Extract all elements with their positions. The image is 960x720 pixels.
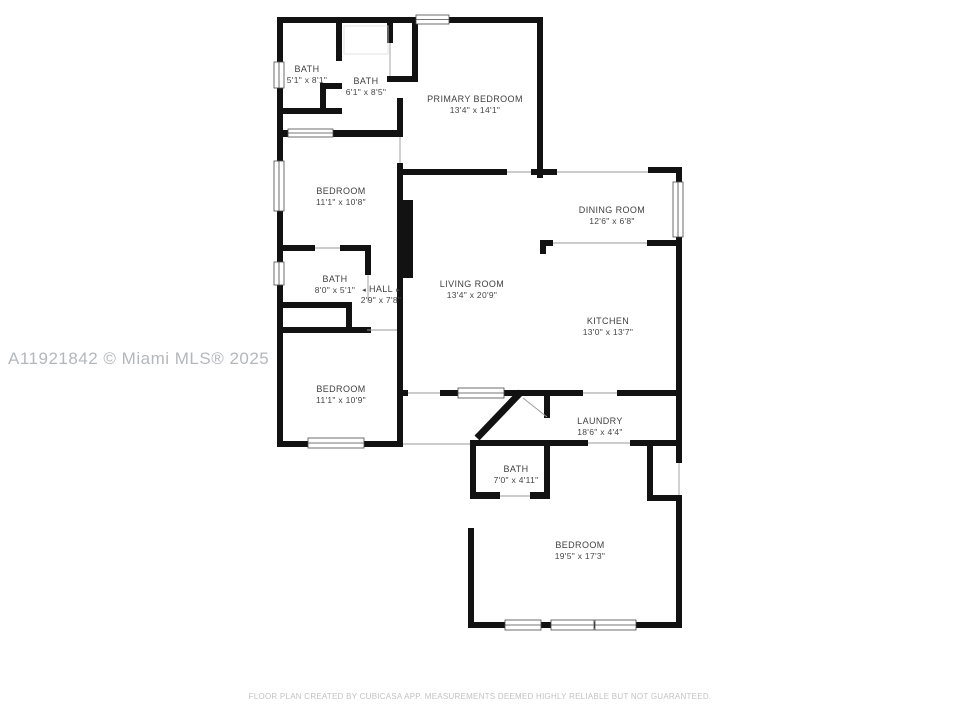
- room-label-dining-room: DINING ROOM: [579, 205, 645, 215]
- window-icon: [595, 620, 636, 630]
- floor-plan-canvas: BATH 5'1" x 8'1" BATH 6'1" x 8'5" PRIMAR…: [0, 0, 960, 720]
- room-dims-hall: 2'9" x 7'8": [361, 295, 401, 305]
- room-dims-bedroom-lower: 19'5" x 17'3": [555, 551, 606, 561]
- floor-plan: BATH 5'1" x 8'1" BATH 6'1" x 8'5" PRIMAR…: [0, 0, 960, 720]
- room-label-bath-3: BATH: [323, 274, 348, 284]
- room-dims-laundry: 18'6" x 4'4": [577, 427, 623, 437]
- diagonal-wall: [477, 392, 521, 438]
- window-icon: [551, 620, 594, 630]
- hall-dimension-arrow-right-icon: ▸: [396, 287, 400, 294]
- room-label-bedroom-upper: BEDROOM: [316, 186, 365, 196]
- room-label-laundry: LAUNDRY: [577, 416, 623, 426]
- room-dims-kitchen: 13'0" x 13'7": [583, 327, 634, 337]
- hall-dimension-arrow-left-icon: ◂: [362, 287, 366, 294]
- shower-outline: [344, 26, 388, 54]
- window-icon: [274, 62, 284, 88]
- room-label-kitchen: KITCHEN: [587, 316, 629, 326]
- room-dims-bath-1: 5'1" x 8'1": [287, 75, 327, 85]
- room-label-bedroom-middle: BEDROOM: [316, 384, 365, 394]
- room-dims-bath-3: 8'0" x 5'1": [315, 285, 355, 295]
- mls-watermark: A11921842 © Miami MLS® 2025: [8, 349, 269, 368]
- window-icon: [274, 161, 284, 211]
- window-icon: [673, 182, 683, 237]
- room-dims-dining-room: 12'6" x 6'8": [589, 216, 635, 226]
- window-icon: [308, 438, 364, 448]
- closet-door-icon: [288, 129, 333, 137]
- room-label-hall: HALL: [369, 284, 393, 294]
- room-label-bedroom-lower: BEDROOM: [555, 540, 604, 550]
- window-icon: [505, 620, 541, 630]
- room-label-bath-2: BATH: [354, 76, 379, 86]
- room-label-bath-4: BATH: [504, 464, 529, 474]
- room-dims-bedroom-middle: 11'1" x 10'9": [316, 395, 366, 405]
- room-label-bath-1: BATH: [295, 64, 320, 74]
- room-dims-bedroom-upper: 11'1" x 10'8": [316, 197, 366, 207]
- room-dims-bath-4: 7'0" x 4'11": [494, 475, 539, 485]
- room-label-primary-bedroom: PRIMARY BEDROOM: [427, 94, 523, 104]
- window-icon: [416, 15, 449, 24]
- room-dims-primary-bedroom: 13'4" x 14'1": [450, 105, 501, 115]
- footer-disclaimer: FLOOR PLAN CREATED BY CUBICASA APP. MEAS…: [249, 692, 712, 701]
- window-icon: [274, 262, 284, 285]
- room-dims-living-room: 13'4" x 20'9": [447, 290, 498, 300]
- room-label-living-room: LIVING ROOM: [440, 279, 504, 289]
- window-icon: [458, 388, 504, 398]
- room-dims-bath-2: 6'1" x 8'5": [346, 87, 386, 97]
